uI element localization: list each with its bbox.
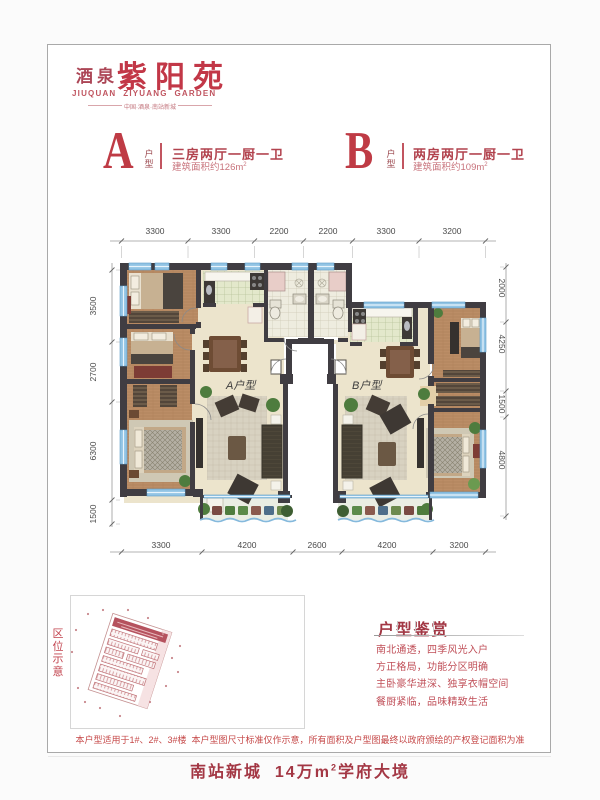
svg-text:3300: 3300	[212, 226, 231, 236]
svg-text:2700: 2700	[88, 362, 98, 381]
svg-text:A户型: A户型	[225, 379, 257, 392]
svg-text:4200: 4200	[238, 540, 257, 550]
svg-text:1500: 1500	[497, 395, 507, 414]
svg-text:6300: 6300	[88, 441, 98, 460]
svg-text:3300: 3300	[377, 226, 396, 236]
svg-text:1500: 1500	[88, 504, 98, 523]
svg-text:2200: 2200	[270, 226, 289, 236]
svg-text:4200: 4200	[378, 540, 397, 550]
svg-text:3200: 3200	[443, 226, 462, 236]
svg-text:3300: 3300	[146, 226, 165, 236]
svg-text:2600: 2600	[308, 540, 327, 550]
svg-text:2000: 2000	[497, 279, 507, 298]
svg-text:4800: 4800	[497, 451, 507, 470]
svg-text:3300: 3300	[152, 540, 171, 550]
svg-text:2200: 2200	[319, 226, 338, 236]
svg-text:B户型: B户型	[352, 379, 383, 392]
svg-text:3500: 3500	[88, 296, 98, 315]
svg-text:3200: 3200	[450, 540, 469, 550]
svg-text:4250: 4250	[497, 335, 507, 354]
